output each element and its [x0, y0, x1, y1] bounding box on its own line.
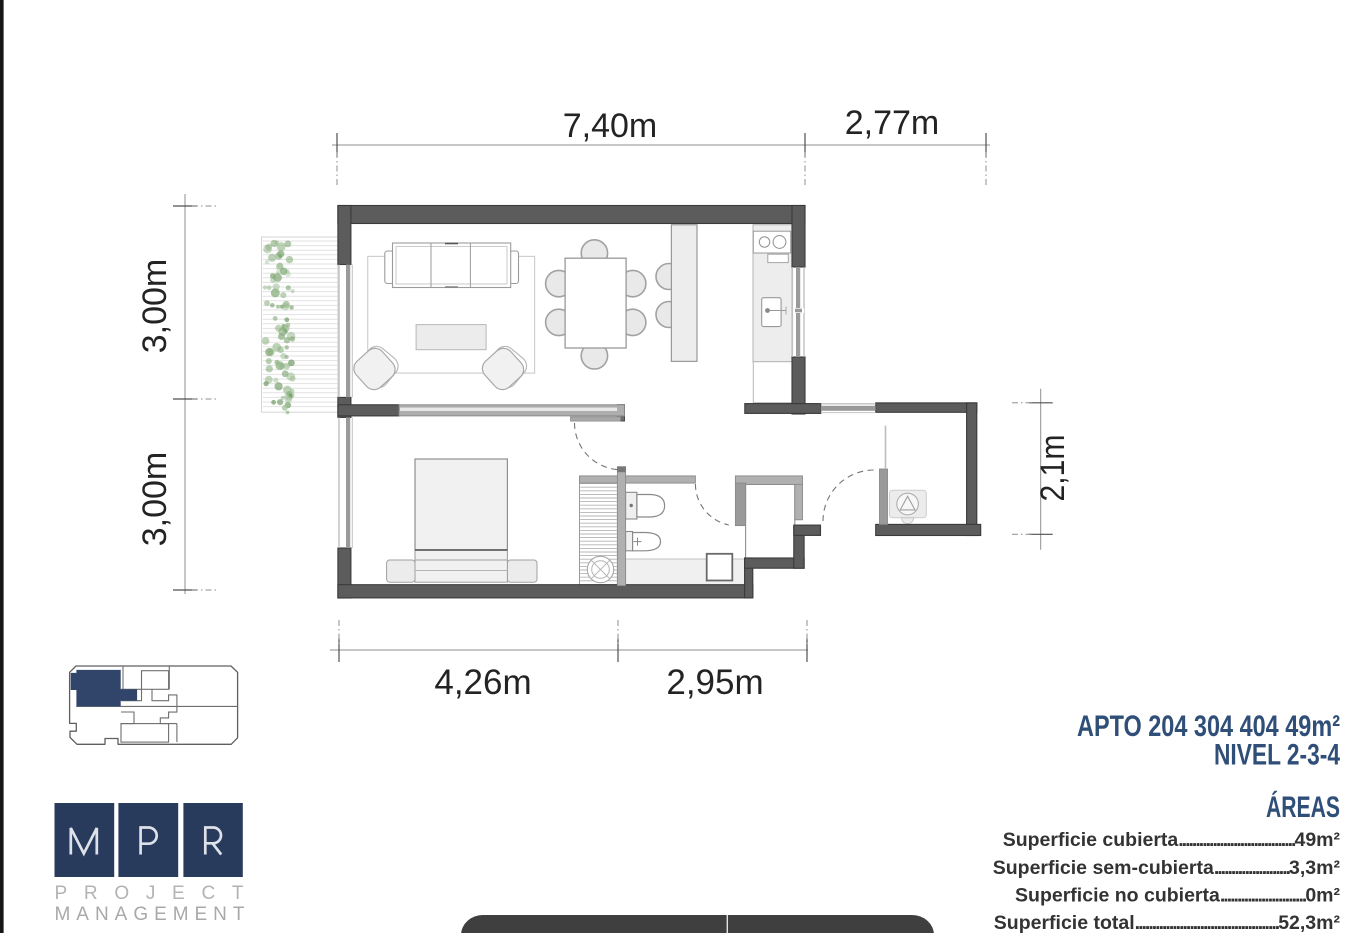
svg-text:3,00m: 3,00m — [136, 259, 174, 354]
svg-text:ÁREAS: ÁREAS — [1266, 790, 1340, 824]
svg-text:2,77m: 2,77m — [845, 104, 940, 142]
svg-text:NIVEL 2-3-4: NIVEL 2-3-4 — [1214, 739, 1340, 772]
svg-text:Superficie sem-cubierta.......: Superficie sem-cubierta.................… — [993, 857, 1341, 879]
svg-text:Superficie cubierta...........: Superficie cubierta.....................… — [1003, 829, 1341, 851]
svg-text:Superficie no cubierta........: Superficie no cubierta..................… — [1015, 885, 1340, 907]
svg-text:3,00m: 3,00m — [136, 452, 174, 547]
svg-text:Superficie total..............: Superficie total........................… — [994, 912, 1341, 933]
svg-text:2,1m: 2,1m — [1034, 435, 1072, 502]
svg-text:7,40m: 7,40m — [563, 107, 658, 145]
svg-text:4,26m: 4,26m — [434, 663, 531, 702]
svg-text:2,95m: 2,95m — [666, 663, 763, 702]
